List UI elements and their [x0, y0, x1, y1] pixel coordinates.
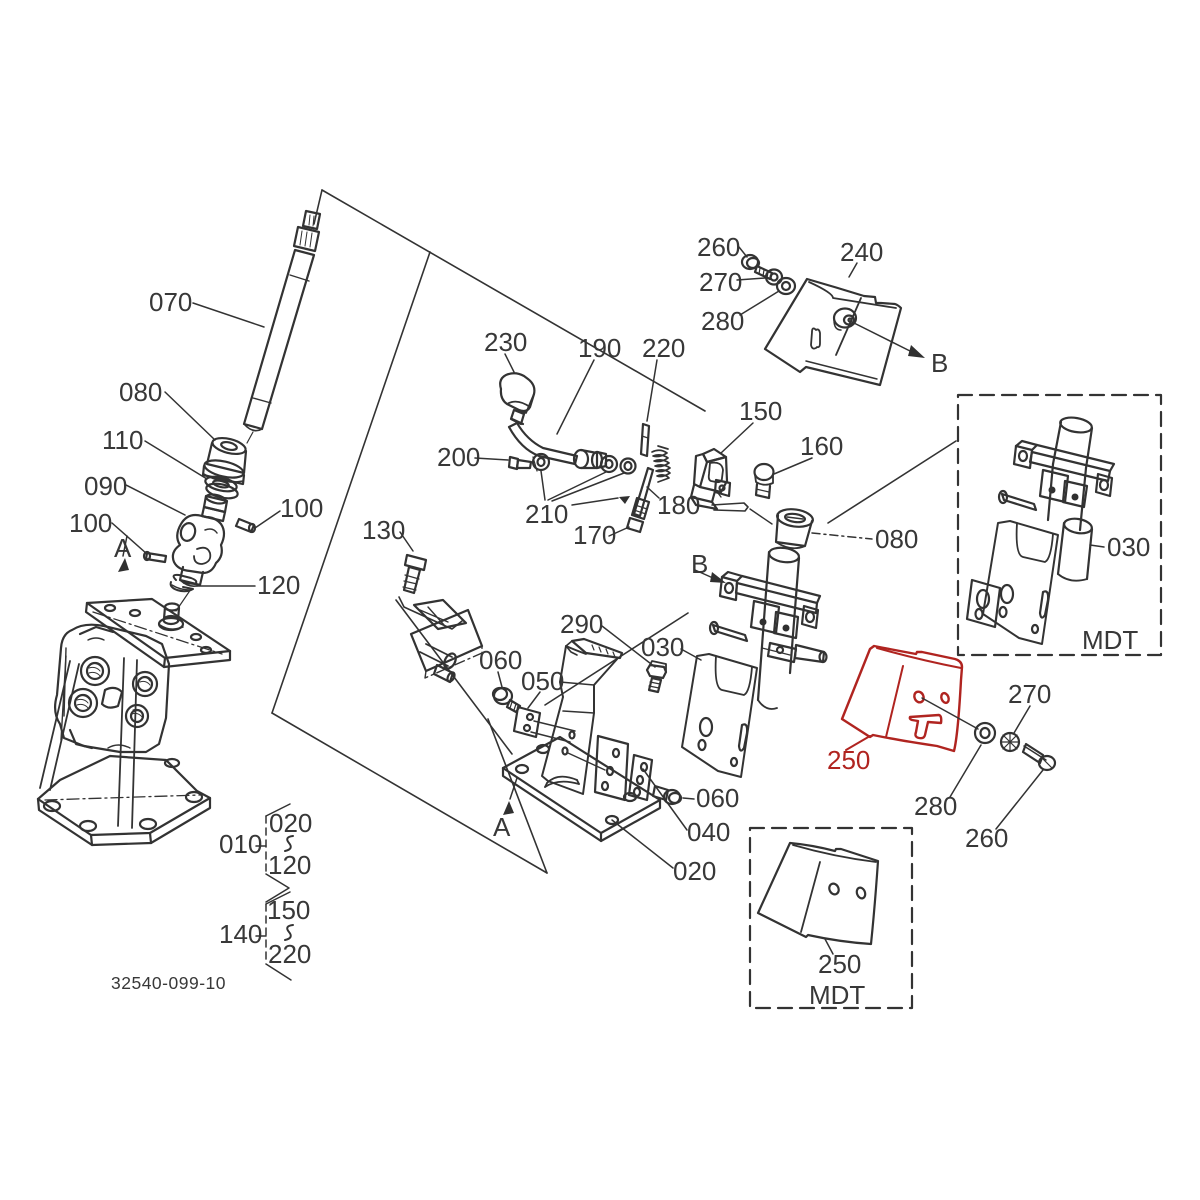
- svg-text:120: 120: [257, 570, 300, 600]
- svg-text:260: 260: [965, 823, 1008, 853]
- svg-text:040: 040: [687, 817, 730, 847]
- svg-text:180: 180: [657, 490, 700, 520]
- svg-text:32540-099-10: 32540-099-10: [111, 973, 226, 993]
- svg-text:030: 030: [1107, 532, 1150, 562]
- svg-text:200: 200: [437, 442, 480, 472]
- svg-text:210: 210: [525, 499, 568, 529]
- svg-text:MDT: MDT: [809, 980, 865, 1010]
- svg-text:270: 270: [1008, 679, 1051, 709]
- svg-text:280: 280: [701, 306, 744, 336]
- svg-text:B: B: [931, 348, 948, 378]
- svg-text:A: A: [493, 812, 511, 842]
- svg-text:050: 050: [521, 666, 564, 696]
- svg-text:230: 230: [484, 327, 527, 357]
- svg-text:110: 110: [102, 425, 143, 455]
- svg-text:260: 260: [697, 232, 740, 262]
- svg-text:220: 220: [642, 333, 685, 363]
- svg-text:030: 030: [641, 632, 684, 662]
- svg-text:010: 010: [219, 829, 262, 859]
- svg-text:140: 140: [219, 919, 262, 949]
- svg-text:290: 290: [560, 609, 603, 639]
- svg-text:150: 150: [267, 895, 310, 925]
- svg-text:100: 100: [69, 508, 112, 538]
- svg-text:100: 100: [280, 493, 323, 523]
- svg-text:070: 070: [149, 287, 192, 317]
- svg-text:150: 150: [739, 396, 782, 426]
- svg-text:080: 080: [119, 377, 162, 407]
- svg-text:250: 250: [818, 949, 861, 979]
- svg-text:020: 020: [673, 856, 716, 886]
- svg-text:080: 080: [875, 524, 918, 554]
- svg-text:220: 220: [268, 939, 311, 969]
- svg-text:190: 190: [578, 333, 621, 363]
- svg-text:160: 160: [800, 431, 843, 461]
- svg-text:240: 240: [840, 237, 883, 267]
- svg-text:270: 270: [699, 267, 742, 297]
- svg-text:090: 090: [84, 471, 127, 501]
- svg-text:120: 120: [268, 850, 311, 880]
- svg-text:020: 020: [269, 808, 312, 838]
- svg-text:130: 130: [362, 515, 405, 545]
- svg-text:060: 060: [696, 783, 739, 813]
- svg-text:A: A: [114, 533, 132, 563]
- svg-text:060: 060: [479, 645, 522, 675]
- svg-text:MDT: MDT: [1082, 625, 1138, 655]
